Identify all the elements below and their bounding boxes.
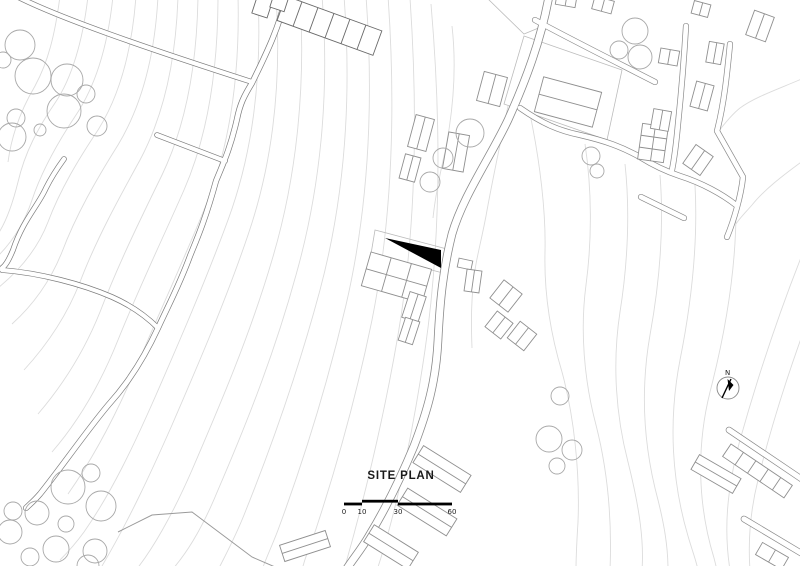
contour-line: [60, 0, 259, 560]
north-arrow: N: [717, 369, 739, 399]
contour-line: [0, 0, 113, 256]
contour-line: [38, 0, 198, 414]
building: [485, 311, 513, 339]
tree: [83, 539, 107, 563]
building: [442, 132, 469, 172]
tree: [47, 94, 81, 128]
contour-line: [718, 78, 800, 132]
building: [364, 525, 419, 566]
tree: [4, 502, 22, 520]
tree: [21, 548, 39, 566]
tree: [582, 147, 600, 165]
building: [691, 1, 711, 18]
tree: [25, 501, 49, 525]
building: [555, 0, 576, 8]
tree: [562, 440, 582, 460]
building: [490, 280, 522, 312]
contour-line: [736, 160, 800, 224]
site-plan-canvas: N 0 10 30 60 SITE PLAN: [0, 0, 800, 566]
contour-line: [471, 106, 508, 348]
tree: [87, 116, 107, 136]
tree: [43, 536, 69, 562]
tree: [420, 172, 440, 192]
road-west-fork-b: [2, 270, 158, 328]
tree: [77, 85, 95, 103]
building: [690, 81, 714, 111]
building: [408, 115, 435, 152]
site-plan-drawing: N 0 10 30 60 SITE PLAN: [0, 0, 800, 566]
tree: [549, 458, 565, 474]
tree: [456, 119, 484, 147]
site-plan-title: SITE PLAN: [367, 470, 434, 482]
tree: [58, 516, 74, 532]
road-left-network: [26, 0, 286, 508]
building: [252, 0, 273, 18]
building: [464, 269, 482, 293]
tree: [51, 470, 85, 504]
tree: [628, 45, 652, 69]
building: [746, 10, 775, 42]
tree: [34, 124, 46, 136]
scale-bar-segment: [344, 503, 362, 506]
contour-line: [583, 144, 610, 566]
building: [457, 258, 473, 270]
ground-break-line: [118, 512, 282, 566]
tree: [622, 18, 648, 44]
tree: [7, 109, 25, 127]
scale-bar-segment: [362, 500, 398, 503]
contour-line: [673, 185, 698, 566]
building: [706, 41, 724, 64]
building: [280, 530, 331, 561]
tree: [536, 426, 562, 452]
building: [658, 48, 679, 66]
north-label: N: [725, 369, 730, 377]
building: [592, 0, 615, 14]
scale-tick-30: 30: [394, 508, 403, 516]
tree: [551, 387, 569, 405]
tree: [0, 52, 11, 68]
tree: [590, 164, 604, 178]
contour-line: [433, 26, 454, 218]
building: [413, 446, 471, 493]
building: [650, 109, 671, 132]
building-row: [277, 0, 382, 55]
contour-line: [530, 114, 578, 566]
scale-bar-segment: [398, 503, 452, 506]
building: [399, 154, 421, 182]
contour-line: [0, 0, 136, 288]
building: [683, 145, 713, 176]
tree: [610, 41, 628, 59]
tree: [82, 464, 100, 482]
plot-boundary: [486, 0, 541, 34]
scale-tick-60: 60: [448, 508, 457, 516]
building: [398, 317, 420, 344]
contour-line: [262, 0, 369, 566]
contour-line: [644, 175, 668, 566]
scale-tick-0: 0: [342, 508, 346, 516]
scale-tick-10: 10: [358, 508, 367, 516]
contour-line: [616, 164, 643, 566]
tree: [0, 520, 22, 544]
tree: [51, 64, 83, 96]
contour-line: [218, 0, 347, 566]
contour-line: [727, 250, 800, 566]
building: [477, 71, 508, 106]
